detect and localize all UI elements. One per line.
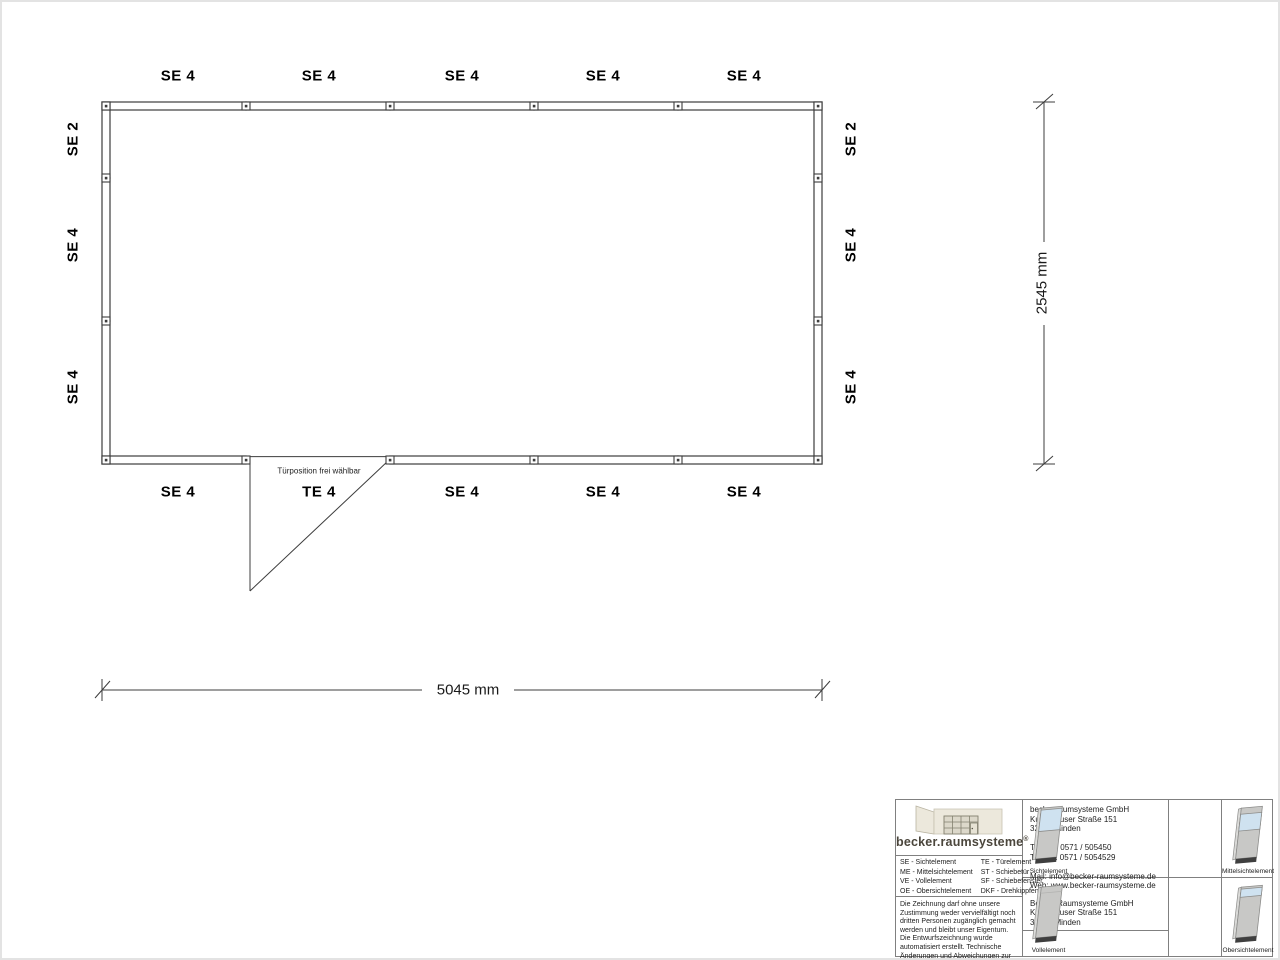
pictogram-obersichtelement: Obersichtelement <box>1222 878 1274 956</box>
wall-label-top-1: SE 4 <box>161 68 196 85</box>
logo-cell: becker.raumsysteme® <box>896 800 1022 855</box>
floor-plan-drawing <box>2 2 1280 762</box>
wall-label-right-3: SE 4 <box>843 370 860 405</box>
title-block: becker.raumsysteme® SE - Sichtelement ME… <box>895 799 1273 957</box>
pictogram-vollelement: Vollelement <box>1022 878 1075 956</box>
wall-label-left-2: SE 4 <box>65 228 82 263</box>
mittelsichtelement-icon <box>1226 802 1272 868</box>
wall-label-top-3: SE 4 <box>445 68 480 85</box>
legend-item: OE - Obersichtelement <box>900 887 973 897</box>
wall-label-bottom-1: SE 4 <box>161 484 196 501</box>
wall-label-left-1: SE 2 <box>65 122 82 157</box>
wall-label-right-1: SE 2 <box>843 122 860 157</box>
pictogram-label: Vollelement <box>1022 947 1075 954</box>
legend-item: VE - Vollelement <box>900 877 973 887</box>
legend-item: SE - Sichtelement <box>900 858 973 868</box>
company-logo-icon <box>913 803 1005 837</box>
wall-label-bottom-3: SE 4 <box>445 484 480 501</box>
obersichtelement-icon <box>1226 881 1272 947</box>
wall-label-top-4: SE 4 <box>586 68 621 85</box>
pictogram-mittelsichtelement: Mittelsichtelement <box>1222 800 1274 877</box>
pictogram-label: Obersichtelement <box>1222 947 1274 954</box>
door-position-note: Türposition frei wählbar <box>277 467 360 476</box>
wall-label-bottom-4: SE 4 <box>586 484 621 501</box>
legend-item: ME - Mittelsichtelement <box>900 868 973 878</box>
wall-label-top-5: SE 4 <box>727 68 762 85</box>
wall-label-top-2: SE 4 <box>302 68 337 85</box>
sichtelement-icon <box>1026 802 1072 868</box>
wall-label-bottom-5: SE 4 <box>727 484 762 501</box>
copyright-disclaimer: Die Zeichnung darf ohne unsere Zustimmun… <box>900 901 1019 960</box>
wall-label-right-2: SE 4 <box>843 228 860 263</box>
door-swing <box>250 457 388 591</box>
drawing-sheet: SE 4 SE 4 SE 4 SE 4 SE 4 SE 4 TE 4 SE 4 … <box>0 0 1280 960</box>
pictogram-sichtelement: Sichtelement <box>1022 800 1075 877</box>
wall-label-bottom-2-door: TE 4 <box>302 484 336 501</box>
pictogram-label: Mittelsichtelement <box>1222 868 1274 875</box>
pictogram-label: Sichtelement <box>1022 868 1075 875</box>
width-dimension-text: 5045 mm <box>437 682 500 699</box>
height-dimension-text: 2545 mm <box>1034 252 1051 315</box>
vollelement-icon <box>1026 881 1072 947</box>
company-logo-text: becker.raumsysteme® <box>896 835 1022 849</box>
element-legend: SE - Sichtelement ME - Mittelsichtelemen… <box>900 858 1020 896</box>
wall-label-left-3: SE 4 <box>65 370 82 405</box>
